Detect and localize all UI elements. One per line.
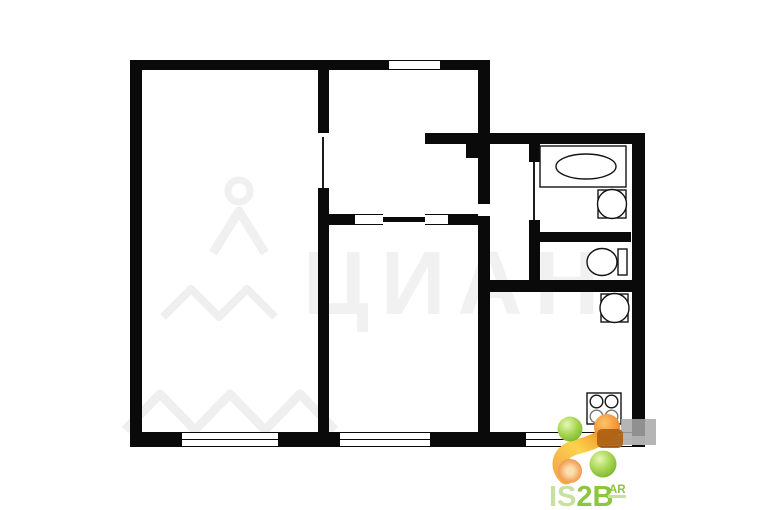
logo-text-is: IS <box>549 481 576 510</box>
fixtures <box>0 0 770 510</box>
logo-ribbon <box>560 430 606 477</box>
watermark-chevron-icon <box>213 211 265 253</box>
logo-brown-square <box>597 429 623 448</box>
cian-watermark: ЦИАН <box>0 0 770 510</box>
logo-text: IS2B <box>549 481 613 510</box>
logo-balloon-green-bottom <box>590 451 617 478</box>
wall-stub <box>466 144 479 158</box>
wall-bottom-2 <box>278 432 340 447</box>
is2b-logo: IS2B AR <box>0 0 770 510</box>
door-opening-h1-1 <box>355 214 383 225</box>
window-kitchen <box>526 432 632 447</box>
logo-gray-bar <box>601 436 656 445</box>
interior-wall-h1-a <box>318 214 355 225</box>
interior-wall-h1-thin <box>383 217 425 222</box>
interior-wall-h1-b <box>448 214 478 225</box>
door-leaf-bathroom <box>533 162 535 220</box>
interior-wall-v1-upper <box>318 60 329 133</box>
logo-text-2b: 2B <box>576 481 613 510</box>
wall-left <box>130 60 142 447</box>
wall-toilet-kitchen-divider <box>478 280 645 292</box>
floor-plan-canvas: ЦИАН <box>0 0 770 510</box>
bathtub-icon <box>540 146 626 187</box>
interior-wall-v2-upper <box>478 60 490 204</box>
walls <box>0 0 770 510</box>
interior-wall-v1-lower <box>318 188 329 432</box>
window-room-left <box>182 432 278 447</box>
bathroom-wall-upper <box>529 144 540 162</box>
wall-bath-toilet-divider <box>529 232 631 242</box>
wall-bottom-3 <box>430 432 526 447</box>
washbasin-icon <box>598 190 627 219</box>
stove-4-burner-icon <box>587 393 621 424</box>
kitchen-sink-icon <box>600 294 629 323</box>
wall-right-section-top <box>425 133 645 144</box>
watermark-text: ЦИАН <box>303 234 611 334</box>
toilet-icon <box>587 249 627 276</box>
window-top <box>389 60 440 70</box>
door-leaf-room-left <box>322 137 324 188</box>
watermark-pin-icon <box>228 180 250 202</box>
window-room-middle <box>340 432 430 447</box>
logo-superscript: AR <box>609 484 626 496</box>
door-opening-h1-2 <box>425 214 448 225</box>
wall-bottom-corner <box>632 432 645 447</box>
wall-top-left <box>130 60 389 70</box>
bathroom-wall-lower <box>529 220 540 290</box>
wall-top-right <box>440 60 490 70</box>
logo-superscript-underline <box>608 495 626 498</box>
logo-gray-block <box>621 419 656 445</box>
watermark-zigzag-small-icon <box>163 289 275 317</box>
logo-balloon-orange-top <box>594 414 620 440</box>
wall-bottom-1 <box>130 432 182 447</box>
logo-balloon-orange-bottom <box>558 459 582 483</box>
interior-wall-v2-lower <box>478 216 490 432</box>
watermark-zigzag-large-icon <box>125 394 335 430</box>
wall-right <box>632 133 645 447</box>
logo-balloon-green-top <box>558 417 583 442</box>
